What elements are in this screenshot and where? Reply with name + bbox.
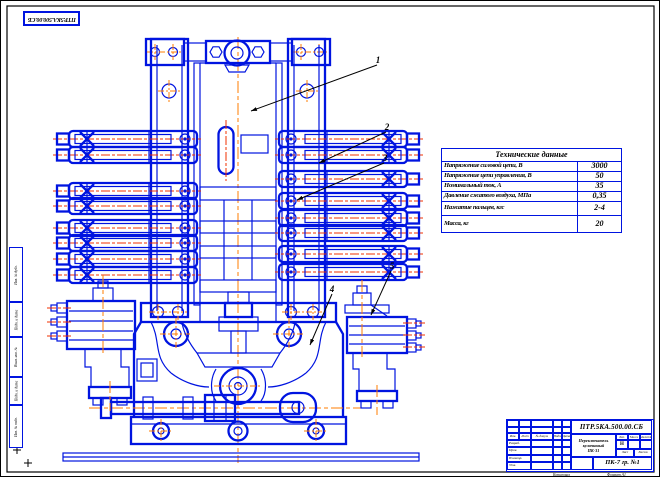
assembly-drawing-linework bbox=[1, 1, 660, 477]
tech-table-row: Напряжение цепи управления, В 50 bbox=[442, 172, 622, 182]
margin-strip-cell: Инв. № дубл. bbox=[9, 247, 23, 302]
drawing-sheet: ПТР.5КА.500.00.СБ Инв. № дубл. Подп. и д… bbox=[0, 0, 660, 477]
tech-table-row: Номинальный ток, А 35 bbox=[442, 182, 622, 192]
margin-strip-cell: Подп. и дата bbox=[9, 377, 23, 405]
tb-row-prov: Пров. bbox=[507, 447, 531, 455]
title-block: Изм. Лист № докум. Подп. Дата Разраб. Пр… bbox=[506, 419, 654, 472]
tech-table-row: Давление сжатого воздуха, МПа 0,35 bbox=[442, 192, 622, 202]
contact-stack-right bbox=[275, 131, 423, 280]
tb-row-utv: Утв. bbox=[507, 462, 531, 470]
tb-name: Переключатель кулачковый ПК-31 bbox=[571, 434, 616, 457]
format-label: Формат А1 bbox=[607, 473, 626, 477]
copied-label: Копировал bbox=[553, 473, 570, 477]
callout-5: 5 bbox=[385, 261, 399, 271]
contact-stack-left bbox=[53, 131, 201, 283]
margin-strip-cell: Взам. инв. № bbox=[9, 337, 23, 377]
margin-strip-cell: Подп. и дата bbox=[9, 302, 23, 337]
tech-table-row: Масса, кг 20 bbox=[442, 216, 622, 233]
tb-row-nkontr: Н.контр. bbox=[507, 455, 531, 463]
callout-3: 3 bbox=[378, 153, 392, 163]
tb-sheet-label: Лист bbox=[616, 449, 634, 458]
callout-1: 1 bbox=[371, 55, 385, 65]
drive-housing bbox=[131, 292, 346, 444]
margin-strip-cell: Инв. № подл. bbox=[9, 405, 23, 448]
tb-group: ПК-7 гр. №1 bbox=[593, 457, 652, 470]
tb-lit-value: Н bbox=[616, 440, 628, 449]
tech-table-title: Технические данные bbox=[442, 149, 622, 162]
tech-table-row: Нажатие пальцев, кгс 2-4 bbox=[442, 202, 622, 216]
top-designation-text: ПТР.5КА.500.00.СБ bbox=[28, 16, 76, 22]
top-designation-stamp: ПТР.5КА.500.00.СБ bbox=[23, 11, 80, 26]
callout-4: 4 bbox=[325, 284, 339, 294]
tb-row-razrab: Разраб. bbox=[507, 440, 531, 448]
tech-table-row: Напряжение силовой цепи, В 3000 bbox=[442, 162, 622, 172]
valve-block-left bbox=[47, 275, 157, 411]
tb-designation: ПТР.5КА.500.00.СБ bbox=[571, 420, 652, 434]
callout-2: 2 bbox=[380, 122, 394, 132]
valve-block-right bbox=[345, 280, 425, 415]
technical-data-table: Технические данные Напряжение силовой це… bbox=[441, 148, 622, 233]
base-channel bbox=[63, 453, 419, 461]
tb-sheets-label: Листов bbox=[634, 449, 652, 458]
margin-strip: Инв. № дубл. Подп. и дата Взам. инв. № П… bbox=[9, 247, 23, 448]
